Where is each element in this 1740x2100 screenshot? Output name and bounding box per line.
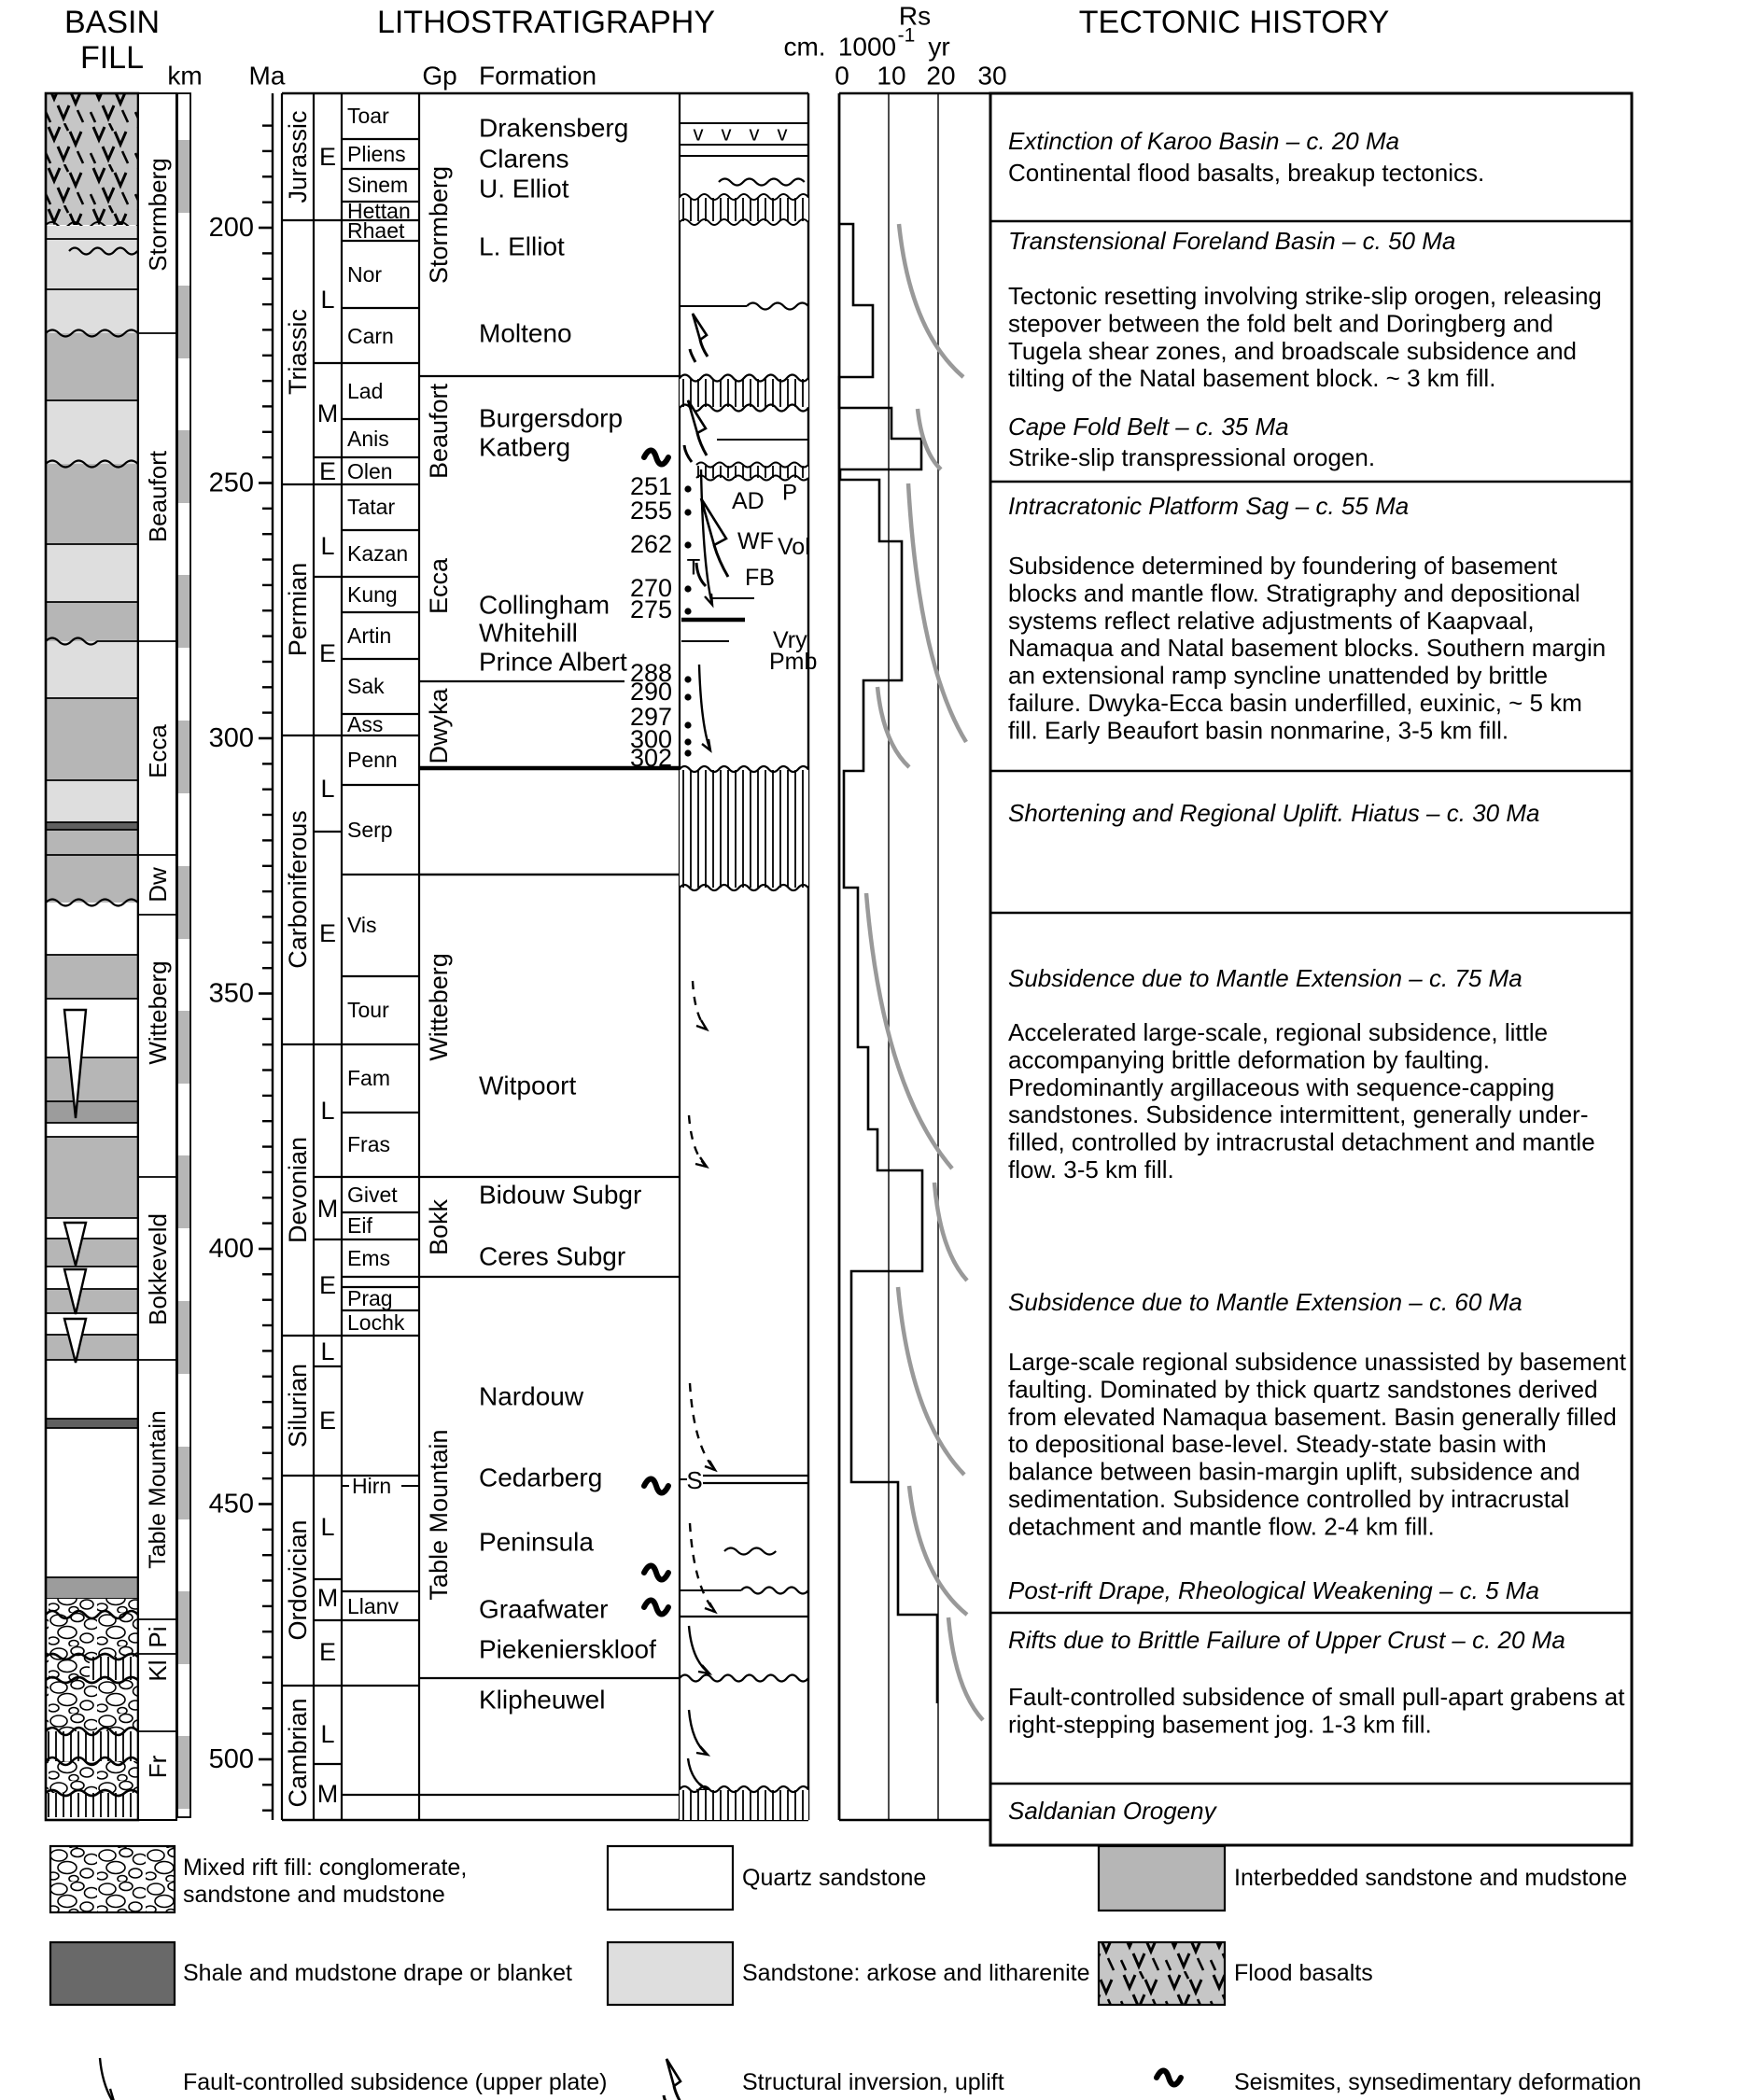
svg-text:Beaufort: Beaufort (144, 450, 172, 542)
svg-text:Sak: Sak (347, 674, 385, 698)
svg-text:failure. Dwyka-Ecca basin unde: failure. Dwyka-Ecca basin underfilled, e… (1008, 689, 1582, 717)
svg-text:Clarens: Clarens (479, 145, 568, 174)
svg-text:Llanv: Llanv (347, 1594, 399, 1618)
svg-text:Kazan: Kazan (347, 541, 408, 566)
svg-text:Rhaet: Rhaet (347, 218, 405, 243)
svg-text:E: E (319, 143, 336, 171)
svg-text:S: S (686, 1466, 702, 1494)
svg-text:detachment and mantle flow. 2-: detachment and mantle flow. 2-4 km fill. (1008, 1512, 1435, 1540)
svg-text:Fras: Fras (347, 1132, 390, 1156)
svg-text:Seismites, synsedimentary defo: Seismites, synsedimentary deformation (1234, 2069, 1641, 2095)
svg-text:Kl: Kl (144, 1659, 172, 1681)
svg-text:1000: 1000 (838, 33, 896, 62)
svg-text:Vis: Vis (347, 913, 377, 937)
svg-text:Accelerated large-scale, regio: Accelerated large-scale, regional subsid… (1008, 1018, 1548, 1046)
svg-text:Dwyka: Dwyka (425, 688, 453, 764)
svg-text:Hirn: Hirn (352, 1474, 391, 1498)
svg-text:Kung: Kung (347, 582, 398, 607)
svg-text:Transtensional Foreland Basin: Transtensional Foreland Basin – c. 50 Ma (1008, 227, 1455, 255)
svg-text:Post-rift Drape, Rheological W: Post-rift Drape, Rheological Weakening –… (1008, 1576, 1539, 1604)
svg-text:Toar: Toar (347, 104, 389, 128)
svg-text:M: M (317, 1584, 339, 1612)
svg-text:255: 255 (630, 497, 672, 525)
svg-text:Cape Fold Belt – c. 35 Ma: Cape Fold Belt – c. 35 Ma (1008, 413, 1289, 441)
svg-text:Namaqua and Natal basement blo: Namaqua and Natal basement blocks. South… (1008, 634, 1606, 662)
svg-text:to depositional base-level. St: to depositional base-level. Steady-state… (1008, 1430, 1547, 1458)
svg-text:Ems: Ems (347, 1246, 390, 1270)
svg-text:500: 500 (209, 1744, 254, 1774)
svg-text:v: v (722, 122, 732, 146)
svg-text:Fam: Fam (347, 1066, 390, 1090)
svg-text:fill. Early Beaufort basin non: fill. Early Beaufort basin nonmarine, 3-… (1008, 716, 1508, 744)
svg-text:Whitehill: Whitehill (479, 619, 578, 648)
svg-text:0: 0 (835, 62, 849, 91)
svg-text:blocks and mantle flow. Strati: blocks and mantle flow. Stratigraphy and… (1008, 579, 1580, 607)
svg-text:Pi: Pi (144, 1626, 172, 1647)
svg-text:250: 250 (209, 469, 254, 498)
svg-text:Pmb: Pmb (769, 649, 817, 675)
svg-text:accompanying brittle deformati: accompanying brittle deformation by faul… (1008, 1045, 1490, 1073)
svg-text:T: T (687, 555, 701, 581)
svg-text:tilting of the Natal basement: tilting of the Natal basement block. ~ 3… (1008, 364, 1495, 392)
svg-text:Nor: Nor (347, 262, 382, 287)
svg-text:Large-scale regional subsidenc: Large-scale regional subsidence unassist… (1008, 1348, 1627, 1376)
svg-text:20: 20 (926, 62, 955, 91)
svg-text:E: E (319, 1271, 336, 1299)
svg-text:LITHOSTRATIGRAPHY: LITHOSTRATIGRAPHY (377, 5, 715, 40)
svg-text:Lad: Lad (347, 379, 383, 403)
svg-text:Devonian: Devonian (284, 1137, 312, 1243)
svg-text:Burgersdorp: Burgersdorp (479, 404, 623, 433)
svg-text:Sinem: Sinem (347, 173, 408, 197)
svg-text:Subsidence determined by found: Subsidence determined by foundering of b… (1008, 552, 1558, 580)
svg-text:E: E (319, 457, 336, 485)
svg-text:FB: FB (745, 565, 775, 591)
svg-text:Drakensberg: Drakensberg (479, 114, 628, 143)
svg-text:Bokkeveld: Bokkeveld (144, 1213, 172, 1325)
svg-text:sandstone and mudstone: sandstone and mudstone (183, 1882, 445, 1908)
svg-text:Structural inversion, uplift: Structural inversion, uplift (742, 2069, 1004, 2095)
svg-text:Quartz sandstone: Quartz sandstone (742, 1865, 926, 1891)
svg-text:Fr: Fr (144, 1755, 172, 1778)
svg-text:FILL: FILL (80, 40, 144, 76)
svg-text:L: L (320, 775, 334, 803)
svg-text:Subsidence due to Mantle Exten: Subsidence due to Mantle Extension – c. … (1008, 1288, 1522, 1316)
svg-text:Givet: Givet (347, 1183, 398, 1207)
svg-text:Anis: Anis (347, 427, 389, 451)
svg-text:Triassic: Triassic (284, 309, 312, 395)
svg-text:AD: AD (732, 488, 765, 514)
svg-text:350: 350 (209, 979, 254, 1009)
svg-text:Continental flood basalts, bre: Continental flood basalts, breakup tecto… (1008, 159, 1484, 187)
svg-text:Vol: Vol (778, 534, 810, 560)
svg-text:Witpoort: Witpoort (479, 1071, 576, 1100)
svg-text:Fault-controlled subsidence of: Fault-controlled subsidence of small pul… (1008, 1683, 1625, 1711)
svg-text:Piekenierskloof: Piekenierskloof (479, 1635, 656, 1664)
svg-text:Cambrian: Cambrian (284, 1698, 312, 1807)
svg-text:Silurian: Silurian (284, 1364, 312, 1448)
svg-text:Gp: Gp (422, 62, 456, 91)
svg-text:Ma: Ma (249, 62, 286, 91)
svg-text:Tugela shear zones, and broads: Tugela shear zones, and broadscale subsi… (1008, 337, 1577, 365)
svg-text:Ass: Ass (347, 712, 383, 736)
svg-text:30: 30 (977, 62, 1006, 91)
svg-text:Carn: Carn (347, 324, 394, 348)
svg-text:Klipheuwel: Klipheuwel (479, 1686, 605, 1715)
svg-text:right-stepping basement jog. 1: right-stepping basement jog. 1-3 km fill… (1008, 1710, 1432, 1738)
svg-text:Prince Albert: Prince Albert (479, 648, 627, 677)
svg-text:10: 10 (877, 62, 905, 91)
svg-text:450: 450 (209, 1490, 254, 1519)
svg-text:Collingham: Collingham (479, 591, 610, 620)
svg-text:U. Elliot: U. Elliot (479, 175, 569, 203)
svg-text:Eif: Eif (347, 1213, 372, 1238)
svg-text:Subsidence due to Mantle Exten: Subsidence due to Mantle Extension – c. … (1008, 964, 1522, 992)
svg-text:v: v (778, 122, 788, 146)
svg-text:Serp: Serp (347, 818, 393, 842)
svg-text:Pliens: Pliens (347, 142, 406, 166)
svg-text:M: M (317, 399, 339, 427)
svg-text:262: 262 (630, 530, 672, 558)
svg-text:Table Mountain: Table Mountain (425, 1429, 453, 1600)
svg-text:Intracratonic Platform Sag – c: Intracratonic Platform Sag – c. 55 Ma (1008, 492, 1409, 520)
svg-text:Olen: Olen (347, 459, 393, 483)
svg-text:flow. 3-5 km fill.: flow. 3-5 km fill. (1008, 1155, 1174, 1183)
svg-text:Sandstone: arkose and litharen: Sandstone: arkose and litharenite (742, 1960, 1089, 1986)
svg-text:Tour: Tour (347, 998, 389, 1022)
svg-text:-1: -1 (898, 25, 916, 47)
svg-text:L: L (320, 286, 334, 314)
svg-text:Witteberg: Witteberg (425, 953, 453, 1061)
svg-text:P: P (782, 481, 797, 506)
svg-text:Ordovician: Ordovician (284, 1519, 312, 1640)
svg-text:Predominantly argillaceous wit: Predominantly argillaceous with sequence… (1008, 1073, 1554, 1101)
svg-text:Penn: Penn (347, 748, 398, 772)
svg-text:WF: WF (737, 528, 774, 554)
svg-text:balance between basin-margin u: balance between basin-margin uplift, sub… (1008, 1458, 1580, 1486)
svg-text:L: L (320, 532, 334, 560)
svg-text:v: v (694, 122, 704, 146)
svg-text:sandstones. Subsidence intermi: sandstones. Subsidence intermittent, gen… (1008, 1100, 1588, 1128)
svg-text:L: L (320, 1337, 334, 1365)
svg-text:Carboniferous: Carboniferous (284, 810, 312, 969)
svg-text:Ecca: Ecca (425, 557, 453, 614)
svg-text:Strike-slip transpressional or: Strike-slip transpressional orogen. (1008, 443, 1375, 471)
svg-text:Stormberg: Stormberg (144, 158, 172, 271)
svg-text:stepover between the fold belt: stepover between the fold belt and Dorin… (1008, 309, 1553, 337)
svg-text:Prag: Prag (347, 1286, 393, 1310)
svg-text:Bokk: Bokk (425, 1198, 453, 1255)
svg-text:L: L (320, 1097, 334, 1125)
svg-text:Peninsula: Peninsula (479, 1528, 594, 1557)
svg-text:Saldanian Orogeny: Saldanian Orogeny (1008, 1797, 1218, 1825)
svg-text:cm.: cm. (783, 33, 825, 62)
svg-text:Lochk: Lochk (347, 1310, 405, 1335)
svg-text:Cedarberg: Cedarberg (479, 1463, 602, 1492)
svg-text:Permian: Permian (284, 563, 312, 657)
svg-text:an extensional ramp syncline u: an extensional ramp syncline unattended … (1008, 662, 1548, 690)
svg-text:400: 400 (209, 1234, 254, 1264)
svg-text:275: 275 (630, 595, 672, 623)
svg-text:M: M (317, 1780, 339, 1808)
svg-text:yr: yr (928, 33, 949, 62)
svg-text:E: E (319, 1407, 336, 1435)
svg-text:Dw: Dw (144, 867, 172, 903)
svg-text:300: 300 (209, 723, 254, 753)
svg-text:from elevated Namaqua basement: from elevated Namaqua basement. Basin ge… (1008, 1403, 1617, 1431)
svg-text:Katberg: Katberg (479, 433, 570, 462)
svg-text:Formation: Formation (479, 62, 596, 91)
svg-text:E: E (319, 639, 336, 667)
svg-text:Nardouw: Nardouw (479, 1382, 584, 1411)
svg-text:v: v (750, 122, 760, 146)
svg-text:TECTONIC HISTORY: TECTONIC HISTORY (1079, 5, 1390, 40)
svg-text:systems reflect relative adjus: systems reflect relative adjustments of … (1008, 607, 1535, 635)
svg-text:Ecca: Ecca (144, 724, 172, 778)
svg-text:Witteberg: Witteberg (144, 960, 172, 1064)
svg-text:Mixed rift fill: conglomerate,: Mixed rift fill: conglomerate, (183, 1855, 467, 1881)
svg-text:302: 302 (630, 744, 672, 772)
svg-text:Interbedded sandstone and muds: Interbedded sandstone and mudstone (1234, 1865, 1627, 1891)
svg-text:Flood basalts: Flood basalts (1234, 1960, 1373, 1986)
svg-text:Ceres Subgr: Ceres Subgr (479, 1242, 625, 1271)
svg-text:290: 290 (630, 678, 672, 706)
svg-text:Rifts due to Brittle Failure o: Rifts due to Brittle Failure of Upper Cr… (1008, 1626, 1565, 1654)
svg-text:faulting. Dominated by thick q: faulting. Dominated by thick quartz sand… (1008, 1375, 1598, 1403)
svg-text:Beaufort: Beaufort (425, 383, 453, 479)
svg-text:Shortening and Regional Uplift: Shortening and Regional Uplift. Hiatus –… (1008, 799, 1539, 827)
svg-text:Extinction of Karoo Basin – c.: Extinction of Karoo Basin – c. 20 Ma (1008, 127, 1399, 155)
svg-text:km: km (167, 62, 202, 91)
svg-text:Jurassic: Jurassic (284, 110, 312, 203)
svg-text:Bidouw Subgr: Bidouw Subgr (479, 1181, 641, 1210)
svg-text:BASIN: BASIN (64, 5, 160, 40)
svg-text:Shale and mudstone drape or bl: Shale and mudstone drape or blanket (183, 1960, 572, 1986)
svg-text:Tectonic resetting involving s: Tectonic resetting involving strike-slip… (1008, 282, 1602, 310)
svg-text:filled, controlled by intracru: filled, controlled by intracrustal detac… (1008, 1128, 1595, 1156)
svg-text:Table Mountain: Table Mountain (145, 1410, 171, 1569)
svg-text:Stormberg: Stormberg (425, 166, 453, 284)
svg-text:E: E (319, 919, 336, 947)
svg-text:E: E (319, 1638, 336, 1666)
svg-text:sedimentation. Subsidence cont: sedimentation. Subsidence controlled by … (1008, 1485, 1569, 1513)
svg-text:200: 200 (209, 213, 254, 243)
svg-text:Tatar: Tatar (347, 495, 395, 519)
svg-text:Graafwater: Graafwater (479, 1595, 609, 1624)
svg-text:L: L (320, 1720, 334, 1748)
svg-text:Artin: Artin (347, 623, 391, 648)
svg-text:L: L (320, 1513, 334, 1541)
svg-text:M: M (317, 1195, 339, 1223)
svg-text:Fault-controlled subsidence (u: Fault-controlled subsidence (upper plate… (183, 2069, 607, 2095)
svg-text:L. Elliot: L. Elliot (479, 232, 565, 261)
svg-text:Molteno: Molteno (479, 319, 572, 348)
